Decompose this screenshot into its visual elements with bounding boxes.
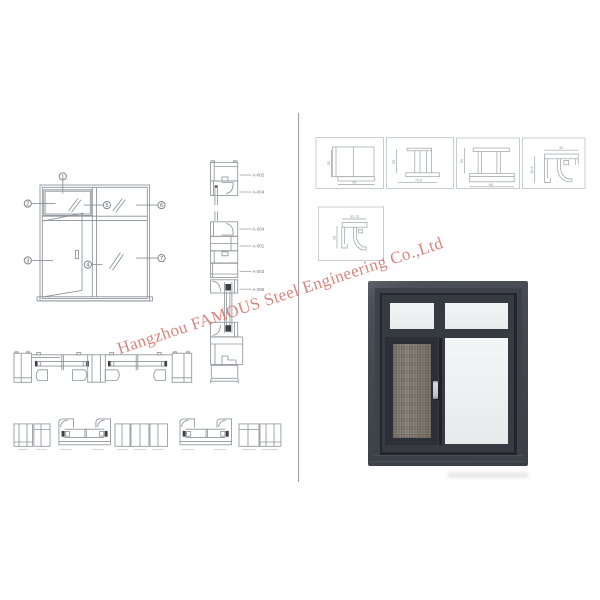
svg-text:80: 80 <box>489 183 493 187</box>
svg-text:33.75: 33.75 <box>350 215 359 219</box>
svg-text:2: 2 <box>26 202 29 208</box>
svg-text:A-004: A-004 <box>253 190 265 195</box>
svg-text:5: 5 <box>105 203 108 209</box>
svg-text:55: 55 <box>327 161 331 165</box>
svg-text:A-001: A-001 <box>253 244 265 249</box>
svg-text:A-002: A-002 <box>253 173 265 178</box>
svg-text:A-004: A-004 <box>253 227 265 232</box>
svg-text:3: 3 <box>26 259 29 265</box>
svg-text:6: 6 <box>160 203 163 209</box>
svg-text:28: 28 <box>333 236 337 240</box>
svg-text:1: 1 <box>61 175 64 181</box>
svg-text:55: 55 <box>392 160 396 164</box>
svg-text:26.5: 26.5 <box>530 167 534 174</box>
svg-text:50: 50 <box>460 159 464 163</box>
svg-text:7: 7 <box>160 256 163 262</box>
svg-text:4: 4 <box>86 263 89 269</box>
svg-text:A-003: A-003 <box>253 269 265 274</box>
svg-text:34: 34 <box>559 146 563 150</box>
svg-text:79.8: 79.8 <box>415 179 422 183</box>
svg-text:60: 60 <box>353 181 357 185</box>
